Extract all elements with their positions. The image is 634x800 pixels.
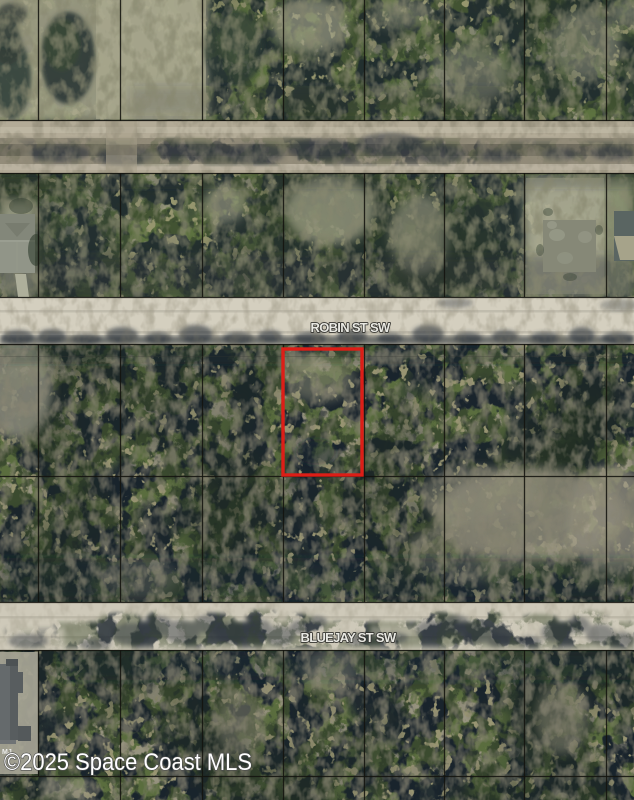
svg-text:©2025 Space Coast MLS: ©2025 Space Coast MLS	[4, 749, 252, 776]
svg-text:BLUEJAY ST SW: BLUEJAY ST SW	[301, 630, 397, 645]
svg-text:ROBIN ST SW: ROBIN ST SW	[311, 320, 391, 335]
